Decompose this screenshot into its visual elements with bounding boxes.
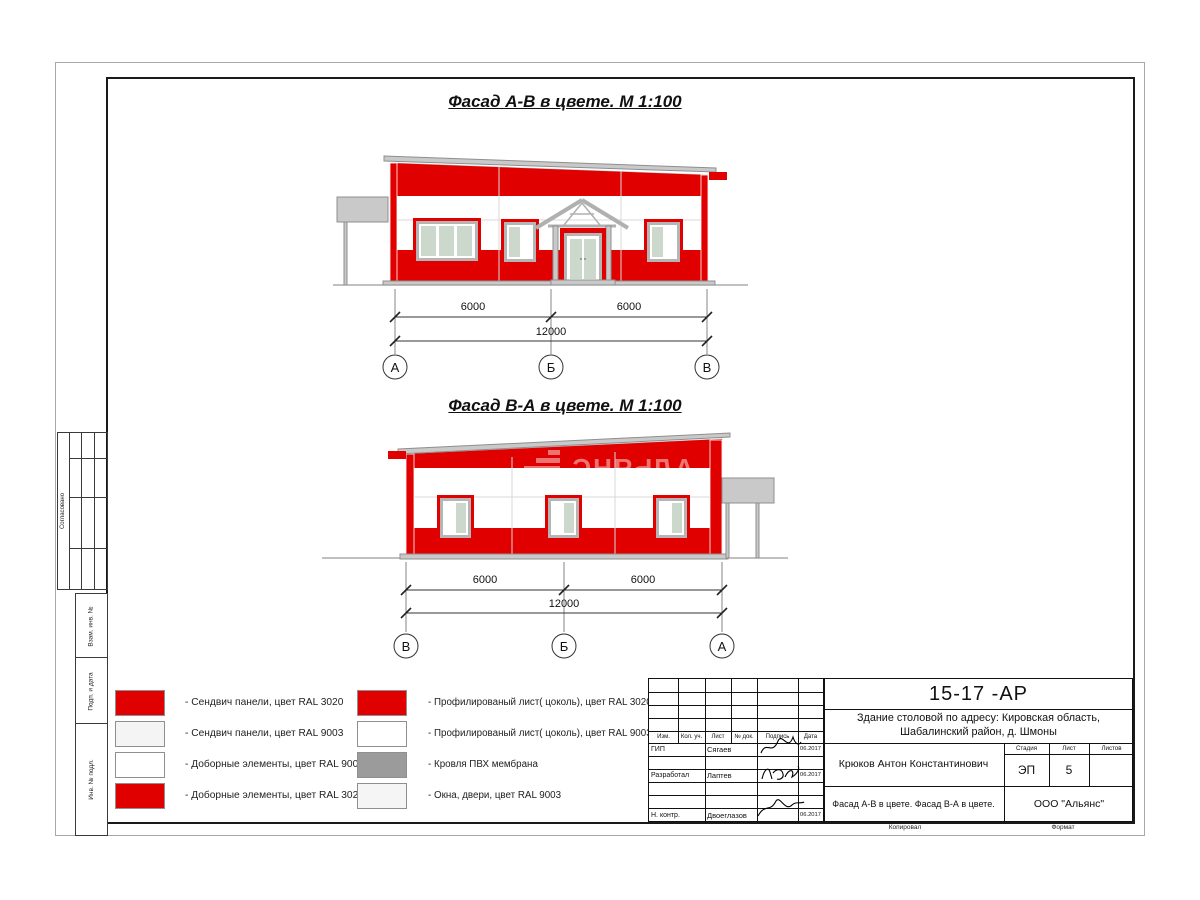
copied-label: Копировал xyxy=(865,824,945,831)
signer-name: Сягаев xyxy=(707,743,757,756)
col-header-doc: № док. xyxy=(731,731,757,743)
legend-swatch xyxy=(357,721,407,747)
legend-swatch xyxy=(115,690,165,716)
legend-swatch xyxy=(357,752,407,778)
col-header-date: Дата xyxy=(798,731,823,743)
col-header-list: Лист xyxy=(705,731,731,743)
legend-label: - Окна, двери, цвет RAL 9003 xyxy=(428,783,561,809)
format-label: Формат xyxy=(1023,824,1103,831)
approval-table-grid xyxy=(70,433,107,589)
company-name: ООО "Альянс" xyxy=(1004,786,1134,823)
legend-label: - Кровля ПВХ мембрана xyxy=(428,752,538,778)
project-address-line1: Здание столовой по адресу: Кировская обл… xyxy=(823,711,1134,725)
legend-label: - Сендвич панели, цвет RAL 9003 xyxy=(185,721,343,747)
stamp-cell-vzam-inv: Взам. инв. № xyxy=(75,593,108,659)
signer-name: Двоеглазов xyxy=(707,808,757,823)
sheet-header: Лист xyxy=(1049,743,1089,754)
approval-table-label: Согласовано xyxy=(58,433,70,589)
col-header-sign: Подпись xyxy=(757,731,798,743)
legend-label: - Доборные элементы, цвет RAL 9003 xyxy=(185,752,364,778)
col-header-kol: Кол. уч. xyxy=(678,731,705,743)
legend-swatch xyxy=(115,752,165,778)
sheet-title-text: Фасад А-В в цвете. Фасад В-А в цвете. xyxy=(823,786,1004,823)
title-block: Изм. Кол. уч. Лист № док. Подпись Дата Г… xyxy=(648,678,1133,822)
stage-header: Стадия xyxy=(1004,743,1049,754)
legend-swatch xyxy=(115,721,165,747)
facade-ab-title: Фасад А-В в цвете. М 1:100 xyxy=(400,92,730,112)
legend-swatch xyxy=(357,690,407,716)
stamp-cell-inv-podl: Инв. № подл. xyxy=(75,723,108,836)
legend-label: - Профилированый лист( цоколь), цвет RAL… xyxy=(428,690,652,716)
legend-label: - Сендвич панели, цвет RAL 3020 xyxy=(185,690,343,716)
stamp-cell-podp-data: Подп. и дата xyxy=(75,657,108,725)
signer-role: Н. контр. xyxy=(651,808,705,823)
signer-date: 06.2017 xyxy=(798,769,823,782)
legend-label: - Профилированый лист( цоколь), цвет RAL… xyxy=(428,721,652,747)
col-header-izm: Изм. xyxy=(649,731,678,743)
signer-role: ГИП xyxy=(651,743,705,756)
signer-date: 06.2017 xyxy=(798,808,823,823)
stage-value: ЭП xyxy=(1004,754,1049,786)
legend-swatch xyxy=(115,783,165,809)
legend-label: - Доборные элементы, цвет RAL 3020 xyxy=(185,783,364,809)
drawing-sheet: Фасад А-В в цвете. М 1:100 Фасад В-А в ц… xyxy=(0,0,1200,900)
sheets-total-value xyxy=(1089,754,1134,786)
facade-ba-title: Фасад В-А в цвете. М 1:100 xyxy=(400,396,730,416)
signer-role: Разработал xyxy=(651,769,705,782)
project-address-line2: Шабалинский район, д. Шмоны xyxy=(823,725,1134,739)
signer-date: 06.2017 xyxy=(798,743,823,756)
legend-swatch xyxy=(357,783,407,809)
approval-table: Согласовано xyxy=(57,432,108,590)
sheets-header: Листов xyxy=(1089,743,1134,754)
sheet-number-value: 5 xyxy=(1049,754,1089,786)
chief-architect-name: Крюков Антон Константинович xyxy=(823,743,1004,786)
document-number: 15-17 -АР xyxy=(823,679,1134,709)
signer-name: Лаптев xyxy=(707,769,757,782)
